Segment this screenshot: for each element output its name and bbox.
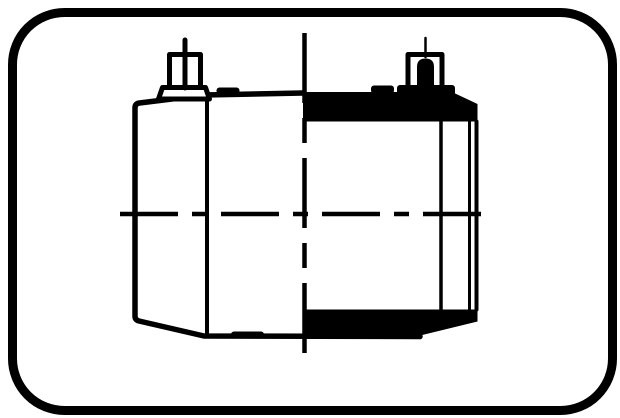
electrofusion-coupling-drawing [0,0,620,418]
terminal-pin-left [159,40,210,99]
terminal-pin-right-conductor [417,59,434,90]
section-band-bottom [303,310,478,338]
fitting-icon-tile[interactable] [0,0,620,418]
frame-group [13,13,613,411]
centerlines [120,33,492,353]
fusion-indicator-top-right [371,86,394,94]
section-fills [217,85,478,338]
tile-border [13,13,613,411]
terminal-pin-right [408,38,442,89]
line-work [120,33,492,353]
